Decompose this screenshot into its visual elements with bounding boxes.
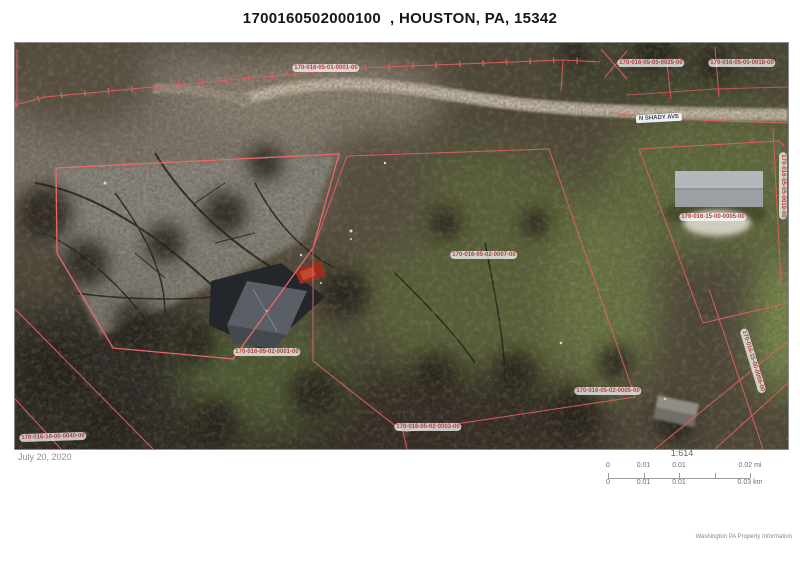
scale-mi-3: 0.02 mi xyxy=(739,462,762,469)
parcel-label: 170-016-05-02-0007-00 xyxy=(450,251,517,259)
scale-km-3: 0.03 km xyxy=(738,479,763,486)
scale-ratio: 1:614 xyxy=(600,448,764,458)
scale-mi-2: 0.01 xyxy=(672,462,686,469)
road-label: N SHADY AVE xyxy=(636,113,683,123)
scale-miles-labels: 0 0.01 0.01 0.02 mi xyxy=(608,462,750,471)
parcel-label: 170-016-15-00-0005-00 xyxy=(679,213,746,221)
scale-km-0: 0 xyxy=(606,479,610,486)
parcel-label: 170-016-05-05-0018-00 xyxy=(708,59,775,67)
page-title: 1700160502000100 , HOUSTON, PA, 15342 xyxy=(0,10,800,27)
parcel-label: 170-016-05-05-0019-00 xyxy=(779,152,787,219)
attribution: Washington PA Property Information xyxy=(696,534,792,540)
parcel-label: 170-016-05-05-0025-00 xyxy=(617,59,684,67)
scale-km-2: 0.01 xyxy=(672,479,686,486)
parcel-label: 170-016-15-00-0006-00 xyxy=(739,328,766,395)
scale-mi-1: 0.01 xyxy=(637,462,651,469)
parcel-label: 170-016-05-02-0003-00 xyxy=(394,423,461,431)
parcel-labels-layer: N SHADY AVE 170-016-05-01-0001-00170-016… xyxy=(15,43,788,449)
parcel-label: 170-016-05-02-0005-00 xyxy=(574,387,641,395)
map-date: July 20, 2020 xyxy=(18,452,72,462)
scale-mi-0: 0 xyxy=(606,462,610,469)
parcel-label: 170-016-05-02-0001-00 xyxy=(233,348,300,356)
parcel-map: N SHADY AVE 170-016-05-01-0001-00170-016… xyxy=(14,42,789,450)
scale-km-labels: 0 0.01 0.01 0.03 km xyxy=(608,479,750,488)
parcel-label: 170-016-18-00-0040-00 xyxy=(19,432,87,442)
parcel-label: 170-016-05-01-0001-00 xyxy=(292,64,359,72)
scale-km-1: 0.01 xyxy=(637,479,651,486)
scale-bar-block: 1:614 0 0.01 0.01 0.02 mi 0 0.01 0.01 0.… xyxy=(600,448,764,492)
